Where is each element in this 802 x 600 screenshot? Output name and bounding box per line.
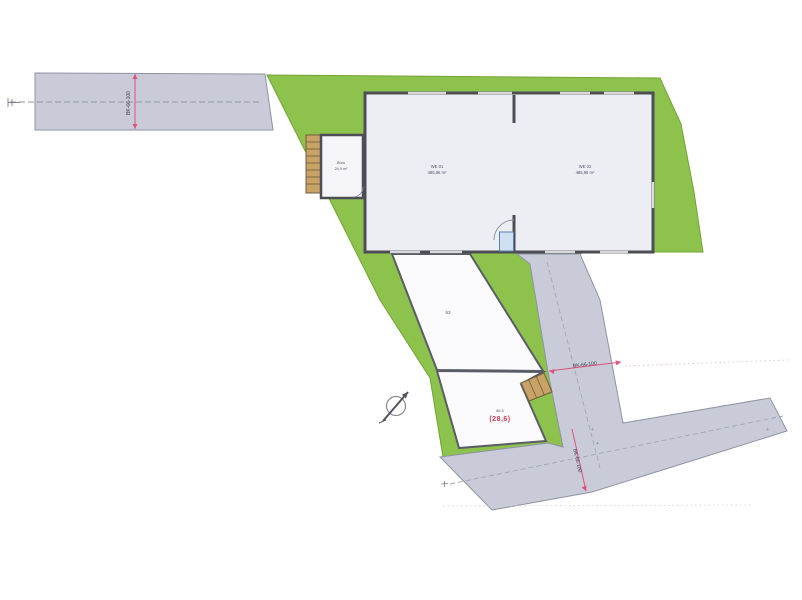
plus-mark: + bbox=[596, 441, 599, 447]
top-road-dim-label: BK-66-100 bbox=[126, 91, 132, 115]
upper-parcel-label: 63 bbox=[445, 310, 451, 315]
entry-vestibule bbox=[500, 232, 514, 251]
main-building bbox=[365, 93, 653, 252]
plus-mark: + bbox=[766, 427, 769, 433]
lower-parcel-red-label: (28,6) bbox=[489, 416, 510, 423]
site-plan: WE 01 485,96 m² WE 02 485,96 m² Büro 24,… bbox=[0, 0, 802, 600]
hall-left-label-2: 485,96 m² bbox=[428, 170, 447, 175]
annex-label-2: 24,9 m² bbox=[335, 167, 349, 171]
annex-stairs bbox=[306, 135, 321, 193]
hall-right-label-1: WE 02 bbox=[579, 164, 592, 169]
hall-right-label-2: 485,96 m² bbox=[576, 170, 595, 175]
annex-label-1: Büro bbox=[337, 161, 345, 165]
plus-mark: + bbox=[591, 427, 594, 433]
lower-parcel-sublabel: 86,5 bbox=[496, 409, 503, 413]
site-plan-svg: WE 01 485,96 m² WE 02 485,96 m² Büro 24,… bbox=[0, 0, 802, 600]
hall-left-label-1: WE 01 bbox=[431, 164, 444, 169]
